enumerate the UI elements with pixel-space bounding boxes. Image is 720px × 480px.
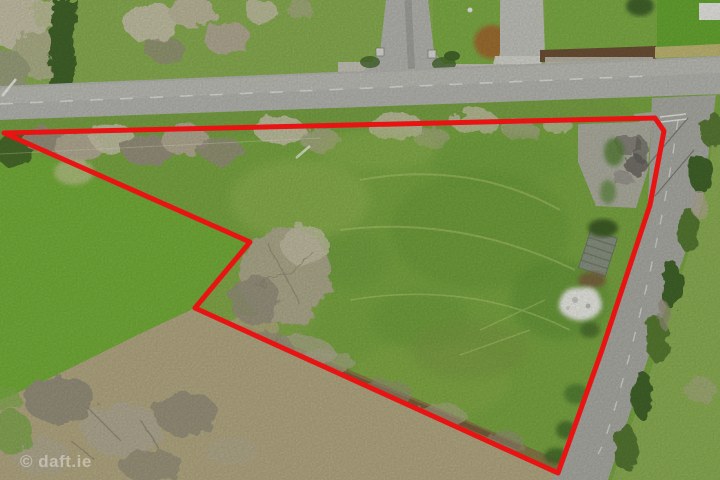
aerial-photo: © daft.ie — [0, 0, 720, 480]
aerial-photo-canvas: © daft.ie — [0, 0, 720, 480]
watermark: © daft.ie — [20, 452, 92, 471]
photo-grain — [0, 0, 720, 480]
